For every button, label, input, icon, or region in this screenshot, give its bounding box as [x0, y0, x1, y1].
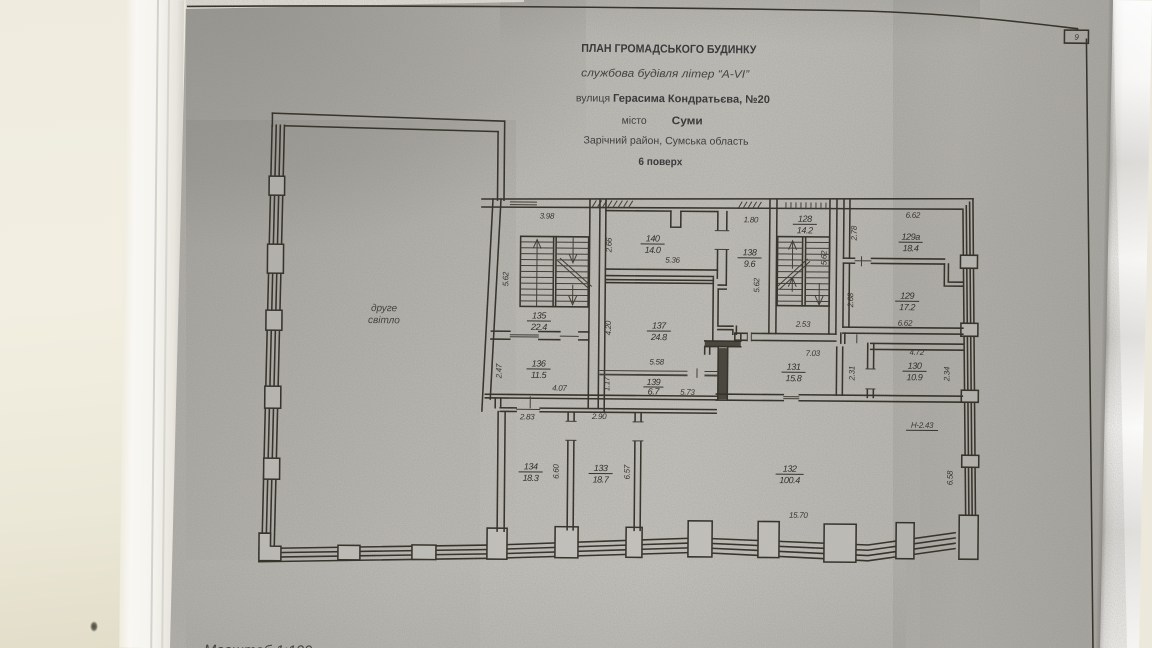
svg-text:14.2: 14.2 [797, 225, 813, 235]
svg-text:100.4: 100.4 [779, 475, 800, 485]
svg-text:135: 135 [532, 310, 547, 320]
svg-text:5.58: 5.58 [649, 357, 664, 366]
svg-text:6 поверх: 6 поверх [638, 156, 682, 168]
svg-text:2.34: 2.34 [942, 366, 951, 382]
svg-text:Суми: Суми [672, 115, 703, 127]
svg-text:10.9: 10.9 [906, 372, 922, 382]
svg-text:2.68: 2.68 [846, 292, 855, 308]
svg-text:5.36: 5.36 [665, 256, 680, 265]
svg-text:5.62: 5.62 [752, 277, 761, 292]
svg-text:2.47: 2.47 [494, 363, 503, 379]
svg-text:2.90: 2.90 [591, 412, 607, 421]
svg-text:140: 140 [646, 233, 660, 243]
svg-text:137: 137 [652, 320, 667, 330]
svg-text:9: 9 [1074, 33, 1079, 42]
svg-text:4.72: 4.72 [909, 348, 924, 357]
svg-text:друге: друге [371, 303, 398, 314]
svg-text:2.31: 2.31 [847, 366, 856, 381]
svg-text:22.4: 22.4 [530, 322, 547, 332]
svg-text:6.58: 6.58 [946, 470, 955, 485]
svg-text:15.70: 15.70 [789, 511, 808, 520]
svg-text:133: 133 [594, 463, 608, 473]
svg-text:Зарічний район, Сумська област: Зарічний район, Сумська область [583, 134, 749, 147]
svg-text:Масштаб 1:100: Масштаб 1:100 [204, 643, 312, 648]
svg-text:2.53: 2.53 [795, 320, 811, 329]
svg-text:2.78: 2.78 [850, 225, 859, 241]
svg-text:2.66: 2.66 [605, 237, 614, 253]
svg-text:129а: 129а [901, 232, 920, 242]
svg-text:132: 132 [783, 464, 797, 474]
svg-text:службова будівля літер “А-VI”: службова будівля літер “А-VI” [581, 67, 751, 80]
svg-text:15.8: 15.8 [785, 373, 801, 383]
svg-text:138: 138 [743, 247, 757, 257]
svg-text:6.57: 6.57 [623, 464, 632, 479]
svg-text:5.62: 5.62 [819, 250, 828, 265]
svg-text:6.7: 6.7 [648, 386, 661, 396]
svg-text:24.8: 24.8 [650, 332, 667, 342]
svg-text:світло: світло [368, 315, 400, 326]
svg-text:5.62: 5.62 [501, 271, 510, 286]
svg-text:місто: місто [622, 115, 647, 127]
svg-text:14.0: 14.0 [645, 245, 661, 255]
svg-text:130: 130 [908, 361, 922, 371]
svg-text:1.80: 1.80 [744, 215, 759, 224]
svg-text:ПЛАН ГРОМАДСЬКОГО БУДИНКУ: ПЛАН ГРОМАДСЬКОГО БУДИНКУ [581, 43, 757, 57]
svg-text:131: 131 [787, 362, 801, 372]
svg-text:1.17: 1.17 [602, 376, 611, 391]
svg-text:136: 136 [532, 358, 546, 368]
svg-text:17.2: 17.2 [899, 302, 915, 312]
svg-text:18.7: 18.7 [593, 474, 610, 484]
svg-text:6.60: 6.60 [552, 464, 561, 479]
svg-text:18.4: 18.4 [903, 243, 919, 253]
svg-text:128: 128 [798, 214, 812, 224]
svg-text:134: 134 [524, 461, 538, 471]
svg-text:2.83: 2.83 [519, 412, 535, 421]
svg-text:7.03: 7.03 [805, 349, 820, 358]
svg-text:18.3: 18.3 [523, 473, 539, 483]
svg-text:Н-2.43: Н-2.43 [911, 421, 934, 430]
svg-text:11.5: 11.5 [531, 370, 548, 380]
svg-text:вулиця Герасима Кондратьєва,: вулиця Герасима Кондратьєва, №20 [576, 92, 770, 106]
svg-text:6.62: 6.62 [906, 211, 921, 220]
svg-text:9.6: 9.6 [744, 259, 756, 269]
svg-text:3.98: 3.98 [540, 212, 555, 221]
svg-text:4.07: 4.07 [552, 384, 567, 393]
svg-text:6.62: 6.62 [898, 319, 913, 328]
svg-text:129: 129 [900, 291, 914, 301]
svg-text:5.73: 5.73 [680, 388, 695, 397]
svg-text:4.20: 4.20 [604, 320, 613, 335]
